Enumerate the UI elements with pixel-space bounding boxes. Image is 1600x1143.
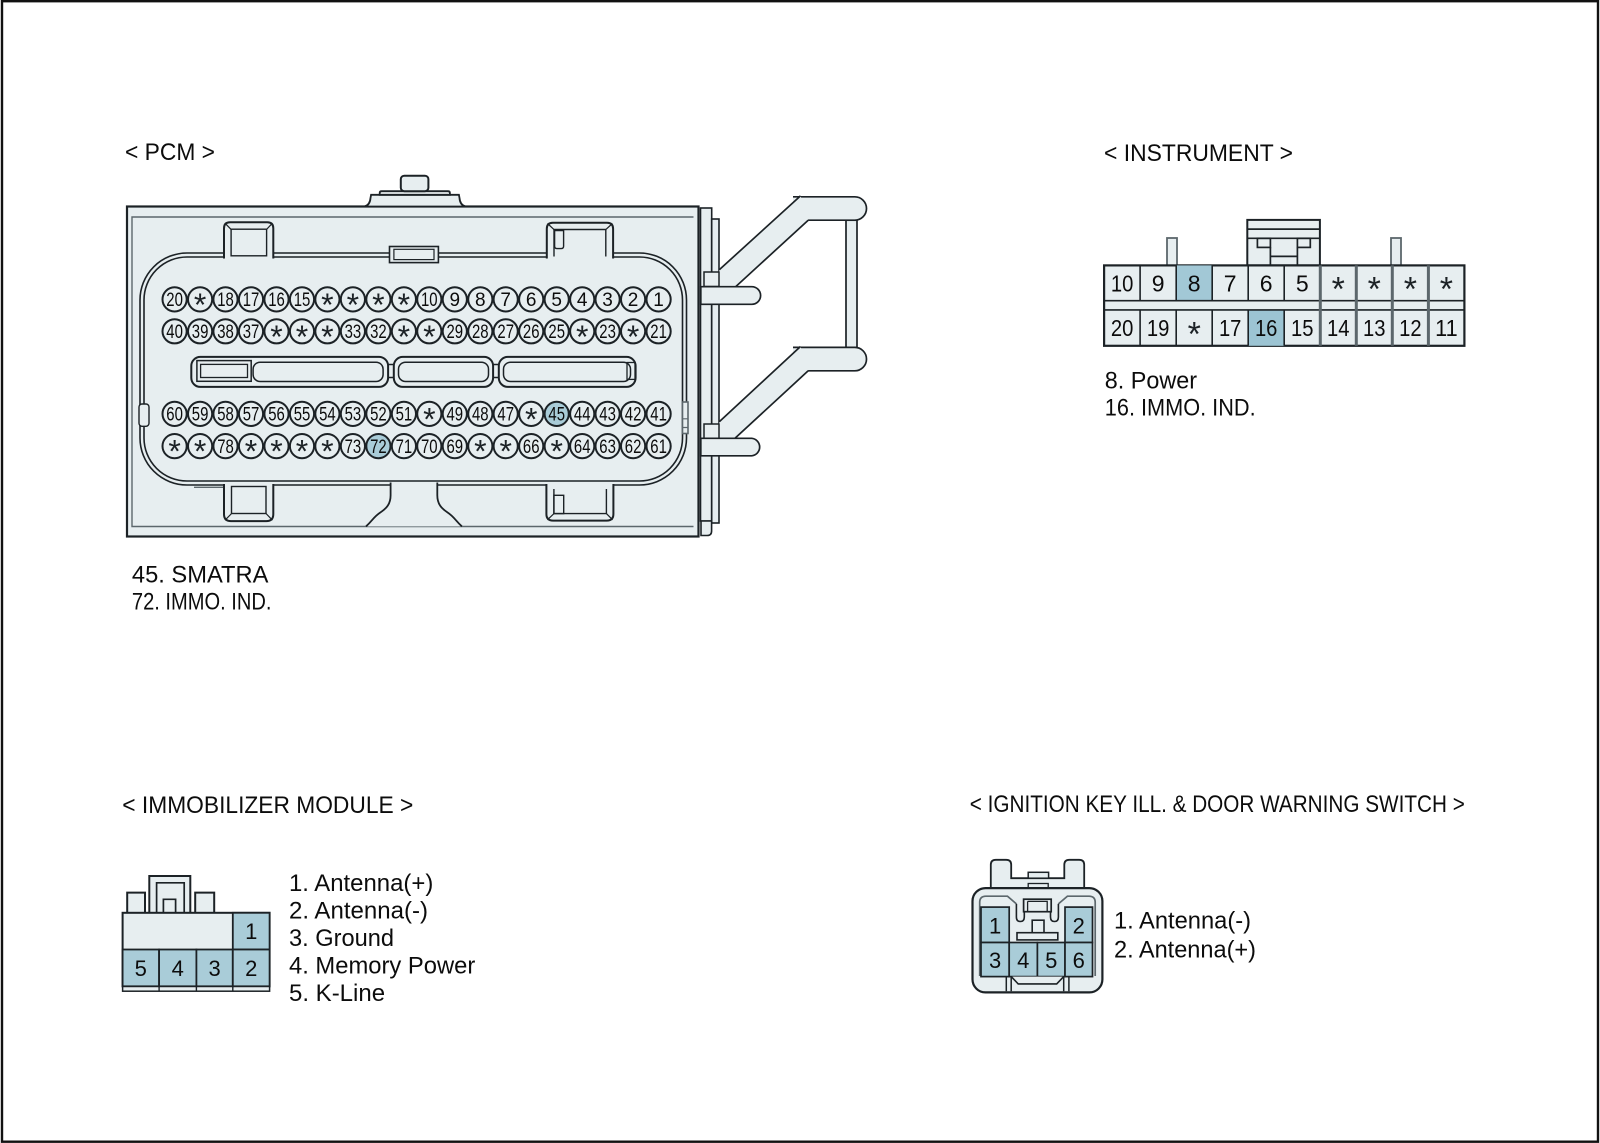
svg-text:1: 1 (653, 290, 664, 311)
svg-text:33: 33 (345, 322, 362, 343)
svg-text:21: 21 (650, 322, 667, 343)
svg-text:*: * (525, 402, 537, 438)
svg-text:7: 7 (500, 290, 511, 311)
svg-text:60: 60 (166, 405, 183, 426)
svg-text:1. Antenna(-): 1. Antenna(-) (1114, 908, 1251, 935)
svg-text:*: * (168, 434, 180, 470)
svg-text:42: 42 (625, 405, 642, 426)
svg-text:*: * (321, 287, 333, 323)
svg-text:19: 19 (1147, 315, 1170, 341)
svg-text:4: 4 (172, 956, 184, 981)
svg-text:*: * (398, 287, 410, 323)
svg-text:37: 37 (243, 322, 260, 343)
svg-text:14: 14 (1327, 315, 1350, 341)
svg-text:6: 6 (1260, 270, 1273, 296)
svg-text:*: * (372, 287, 384, 323)
svg-text:71: 71 (396, 437, 413, 458)
svg-text:4: 4 (577, 290, 588, 311)
svg-text:5: 5 (135, 956, 147, 981)
svg-text:51: 51 (396, 405, 413, 426)
svg-text:41: 41 (650, 405, 667, 426)
svg-text:1: 1 (989, 913, 1001, 938)
svg-text:6: 6 (1073, 948, 1085, 973)
svg-text:49: 49 (447, 405, 464, 426)
svg-text:23: 23 (599, 322, 616, 343)
svg-text:48: 48 (472, 405, 489, 426)
svg-text:4. Memory Power: 4. Memory Power (289, 953, 475, 980)
svg-text:2: 2 (628, 290, 639, 311)
svg-text:40: 40 (166, 322, 183, 343)
svg-text:2: 2 (1073, 913, 1085, 938)
svg-text:*: * (1368, 271, 1381, 309)
svg-text:16: 16 (268, 290, 285, 311)
svg-text:17: 17 (1219, 315, 1242, 341)
svg-text:63: 63 (599, 437, 616, 458)
svg-text:2. Antenna(-): 2. Antenna(-) (289, 898, 428, 925)
svg-text:1. Antenna(+): 1. Antenna(+) (289, 870, 433, 897)
svg-text:20: 20 (166, 290, 183, 311)
svg-text:< INSTRUMENT >: < INSTRUMENT > (1104, 140, 1293, 167)
svg-text:15: 15 (294, 290, 311, 311)
svg-text:*: * (550, 434, 562, 470)
svg-text:9: 9 (450, 290, 461, 311)
svg-text:*: * (1188, 316, 1201, 354)
svg-text:27: 27 (497, 322, 514, 343)
svg-text:*: * (423, 319, 435, 355)
svg-text:18: 18 (217, 290, 234, 311)
svg-text:32: 32 (370, 322, 387, 343)
svg-text:*: * (347, 287, 359, 323)
svg-text:56: 56 (268, 405, 285, 426)
svg-text:16: 16 (1255, 315, 1278, 341)
svg-text:3. Ground: 3. Ground (289, 925, 394, 952)
svg-text:44: 44 (574, 405, 591, 426)
svg-text:*: * (499, 434, 511, 470)
svg-text:10: 10 (421, 290, 438, 311)
svg-text:6: 6 (526, 290, 537, 311)
svg-text:4: 4 (1017, 948, 1029, 973)
svg-text:58: 58 (217, 405, 234, 426)
svg-text:3: 3 (208, 956, 220, 981)
svg-text:5. K-Line: 5. K-Line (289, 980, 385, 1007)
svg-text:*: * (270, 434, 282, 470)
svg-text:57: 57 (243, 405, 260, 426)
svg-text:5: 5 (1045, 948, 1057, 973)
svg-text:28: 28 (472, 322, 489, 343)
svg-text:5: 5 (551, 290, 562, 311)
svg-text:45. SMATRA: 45. SMATRA (132, 562, 269, 589)
svg-text:78: 78 (217, 437, 234, 458)
svg-text:39: 39 (192, 322, 209, 343)
svg-text:52: 52 (370, 405, 387, 426)
svg-text:43: 43 (599, 405, 616, 426)
svg-text:*: * (1440, 271, 1453, 309)
svg-text:*: * (194, 287, 206, 323)
svg-text:13: 13 (1363, 315, 1386, 341)
svg-text:*: * (321, 434, 333, 470)
svg-text:72. IMMO. IND.: 72. IMMO. IND. (132, 589, 272, 616)
svg-text:< IMMOBILIZER MODULE >: < IMMOBILIZER MODULE > (122, 792, 413, 819)
svg-text:69: 69 (447, 437, 464, 458)
svg-text:25: 25 (548, 322, 565, 343)
svg-text:2. Antenna(+): 2. Antenna(+) (1114, 937, 1256, 964)
svg-text:< PCM >: < PCM > (125, 139, 215, 166)
svg-text:15: 15 (1291, 315, 1314, 341)
svg-text:*: * (423, 402, 435, 438)
svg-text:70: 70 (421, 437, 438, 458)
svg-text:72: 72 (370, 437, 387, 458)
svg-text:*: * (576, 319, 588, 355)
svg-text:1: 1 (245, 919, 257, 944)
svg-text:*: * (1332, 271, 1345, 309)
svg-text:66: 66 (523, 437, 540, 458)
svg-text:3: 3 (602, 290, 613, 311)
svg-text:64: 64 (574, 437, 591, 458)
svg-text:61: 61 (650, 437, 667, 458)
svg-text:*: * (296, 434, 308, 470)
svg-text:*: * (321, 319, 333, 355)
svg-text:11: 11 (1435, 315, 1458, 341)
svg-text:16. IMMO. IND.: 16. IMMO. IND. (1105, 395, 1256, 422)
svg-text:*: * (474, 434, 486, 470)
svg-text:10: 10 (1111, 270, 1134, 296)
svg-text:17: 17 (243, 290, 260, 311)
svg-text:*: * (270, 319, 282, 355)
svg-text:*: * (194, 434, 206, 470)
svg-text:9: 9 (1152, 270, 1165, 296)
svg-text:5: 5 (1296, 270, 1309, 296)
svg-text:26: 26 (523, 322, 540, 343)
svg-text:*: * (627, 319, 639, 355)
svg-text:8: 8 (475, 290, 486, 311)
svg-text:*: * (1404, 271, 1417, 309)
svg-text:8: 8 (1188, 270, 1201, 296)
svg-text:38: 38 (217, 322, 234, 343)
svg-text:73: 73 (345, 437, 362, 458)
svg-text:8. Power: 8. Power (1105, 368, 1197, 395)
svg-text:3: 3 (989, 948, 1001, 973)
svg-text:*: * (296, 319, 308, 355)
svg-text:2: 2 (245, 956, 257, 981)
svg-text:47: 47 (497, 405, 514, 426)
svg-text:54: 54 (319, 405, 336, 426)
svg-text:20: 20 (1111, 315, 1134, 341)
svg-text:7: 7 (1224, 270, 1237, 296)
svg-text:29: 29 (447, 322, 464, 343)
svg-text:62: 62 (625, 437, 642, 458)
svg-text:*: * (398, 319, 410, 355)
svg-text:45: 45 (548, 405, 565, 426)
svg-text:59: 59 (192, 405, 209, 426)
svg-text:< IGNITION KEY ILL. & DOOR WAR: < IGNITION KEY ILL. & DOOR WARNING SWITC… (970, 791, 1465, 818)
svg-text:55: 55 (294, 405, 311, 426)
svg-text:53: 53 (345, 405, 362, 426)
svg-text:*: * (245, 434, 257, 470)
svg-text:12: 12 (1399, 315, 1422, 341)
